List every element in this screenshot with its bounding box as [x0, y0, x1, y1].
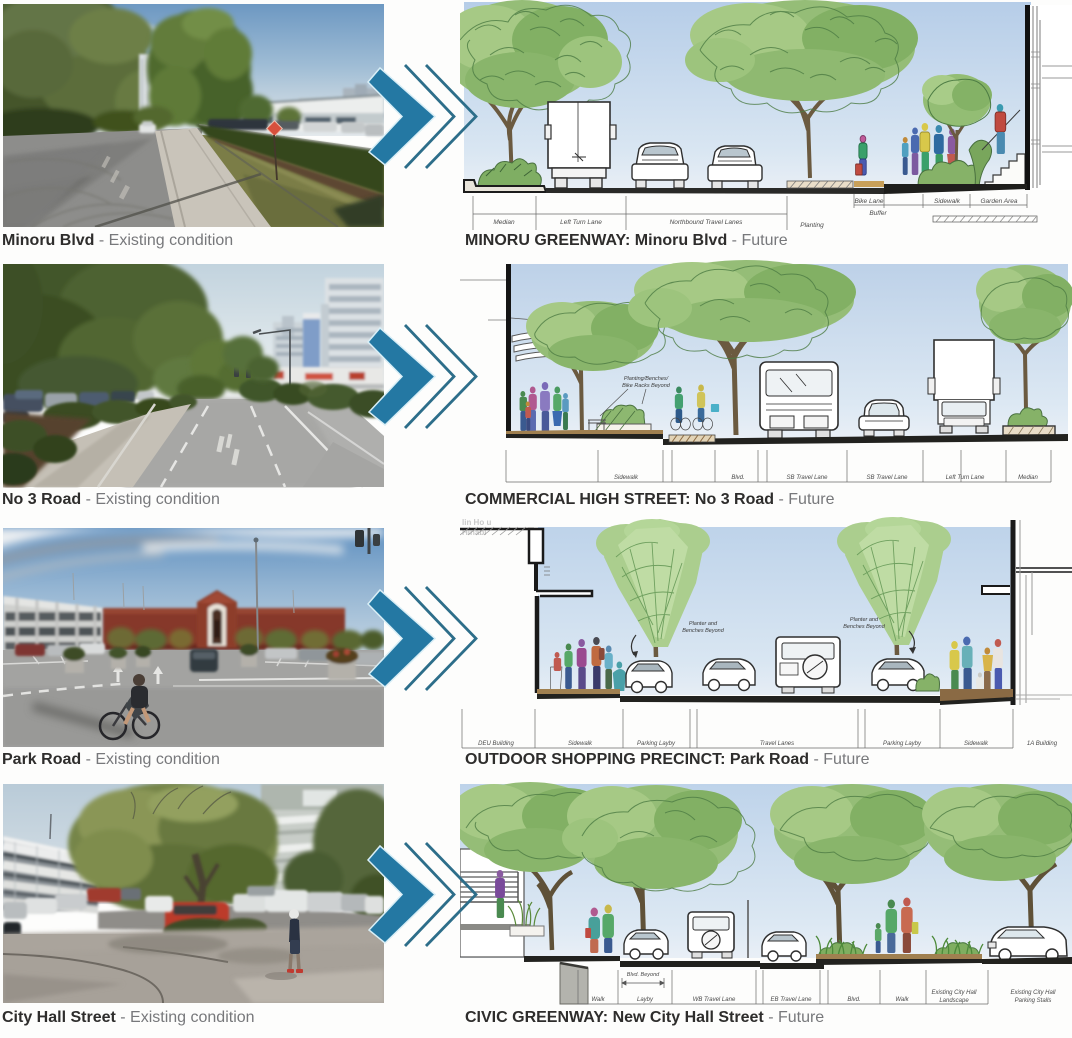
svg-text:Planter and: Planter and — [850, 617, 879, 623]
svg-text:Planting/Benches/: Planting/Benches/ — [624, 376, 669, 382]
svg-text:Sidewalk: Sidewalk — [614, 475, 639, 481]
svg-text:Benches Beyond: Benches Beyond — [682, 628, 725, 634]
svg-text:Median: Median — [1018, 475, 1038, 481]
svg-text:SB Travel Lane: SB Travel Lane — [787, 475, 829, 481]
svg-text:Existing City Hall: Existing City Hall — [1010, 990, 1056, 996]
svg-text:Blvd.: Blvd. — [731, 475, 744, 481]
svg-text:DEU Building: DEU Building — [478, 741, 514, 747]
svg-text:Parking Stalls: Parking Stalls — [1015, 998, 1052, 1004]
svg-text:lin Ho u: lin Ho u — [462, 518, 491, 527]
svg-text:EB Travel Lane: EB Travel Lane — [771, 997, 813, 1003]
svg-text:WB Travel Lane: WB Travel Lane — [693, 997, 736, 1003]
svg-text:1A Building: 1A Building — [1027, 741, 1058, 747]
svg-text:Parking Layby: Parking Layby — [883, 741, 922, 747]
svg-text:Blvd.: Blvd. — [847, 997, 860, 1003]
svg-text:Parking Layby: Parking Layby — [637, 741, 676, 747]
svg-text:Left Turn Lane: Left Turn Lane — [946, 475, 985, 481]
svg-text:Northbound Travel Lanes: Northbound Travel Lanes — [670, 219, 744, 226]
svg-text:Landscape: Landscape — [939, 998, 969, 1004]
svg-text:Planter and: Planter and — [689, 621, 718, 627]
svg-text:Bike Lane: Bike Lane — [855, 198, 884, 205]
svg-text:Median: Median — [493, 219, 515, 226]
svg-text:Buffer: Buffer — [869, 210, 887, 217]
svg-text:Walk: Walk — [895, 997, 909, 1003]
svg-text:Benches Beyond: Benches Beyond — [843, 624, 886, 630]
svg-text:Left Turn Lane: Left Turn Lane — [560, 219, 602, 226]
svg-text:Walk: Walk — [591, 997, 605, 1003]
svg-text:Bike Racks Beyond: Bike Racks Beyond — [622, 383, 671, 389]
svg-text:Existing City Hall: Existing City Hall — [931, 990, 977, 996]
svg-text:Blvd. Beyond: Blvd. Beyond — [627, 972, 660, 978]
svg-text:SB Travel Lane: SB Travel Lane — [867, 475, 909, 481]
svg-text:Sidewalk: Sidewalk — [568, 741, 593, 747]
svg-text:Layby: Layby — [637, 997, 654, 1003]
svg-text:Travel Lanes: Travel Lanes — [760, 741, 794, 747]
svg-text:Planting: Planting — [800, 222, 824, 229]
svg-text:Garden Area: Garden Area — [981, 198, 1018, 205]
svg-text:Sidewalk: Sidewalk — [964, 741, 989, 747]
svg-text:Sidewalk: Sidewalk — [934, 198, 961, 205]
